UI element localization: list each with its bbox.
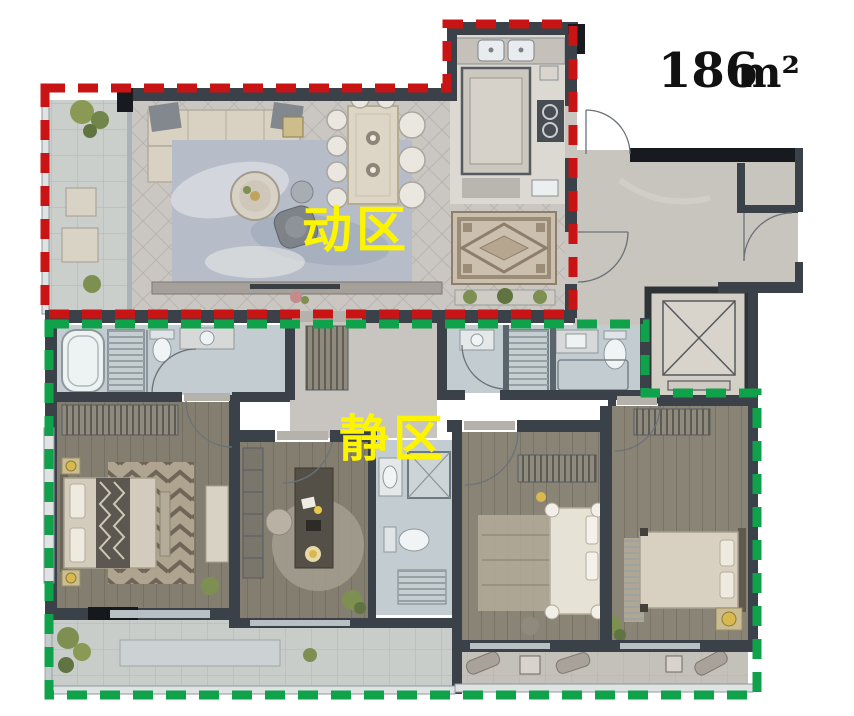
bathroom-3 (553, 325, 643, 393)
dining-table (348, 106, 398, 204)
kitchen-door-arc (586, 110, 630, 154)
balcony-bottom-right (462, 649, 748, 686)
master-bathroom (57, 325, 289, 395)
floorplan-page: 动区 静区 186 m² (0, 0, 854, 716)
flower-icon (301, 296, 309, 304)
desk (295, 468, 333, 568)
bedroom-3 (602, 406, 748, 644)
coffee-table (231, 172, 279, 220)
plant-icon (303, 648, 317, 662)
plant-icon (201, 577, 219, 595)
master-bedroom (57, 402, 229, 610)
toilet-icon (384, 527, 429, 552)
area-label: 186 m² (658, 43, 800, 99)
quiet-zone-label: 静区 (339, 409, 447, 468)
balcony-stool (62, 228, 98, 262)
area-unit: m² (737, 48, 800, 97)
bedroom-2 (462, 432, 605, 644)
medallion-rug (452, 212, 556, 284)
bathroom-2 (437, 325, 553, 393)
plant-icon (354, 602, 366, 614)
balcony-stool (66, 188, 96, 216)
vanity-sink-icon (180, 328, 234, 349)
balcony-top-left (42, 98, 127, 314)
kitchen (450, 34, 568, 204)
pouf (521, 617, 539, 635)
side-table (283, 117, 303, 137)
bed (60, 474, 170, 572)
sink-icon (460, 330, 494, 350)
desk-chair (266, 509, 292, 535)
bathtub-icon (62, 330, 104, 392)
vanity-sink-icon (556, 330, 598, 353)
planter-box (455, 288, 555, 305)
stove-icon (537, 100, 564, 142)
plant-icon (83, 275, 101, 293)
pendant-icon (314, 506, 322, 514)
side-table (520, 656, 540, 674)
elevator (648, 290, 748, 400)
lamp-icon (536, 492, 546, 502)
floorplan-svg: 动区 静区 186 m² (0, 0, 854, 716)
bed (545, 503, 605, 619)
bench (206, 486, 228, 562)
nightstand-lamp-icon (716, 608, 742, 630)
bed (640, 528, 746, 612)
flower-icon (290, 291, 302, 303)
side-table (666, 656, 682, 672)
toilet-icon (604, 331, 626, 369)
balcony-bottom-left (50, 620, 455, 686)
plant-icon (614, 629, 626, 641)
active-zone-label: 动区 (302, 200, 410, 259)
bench (120, 640, 280, 666)
